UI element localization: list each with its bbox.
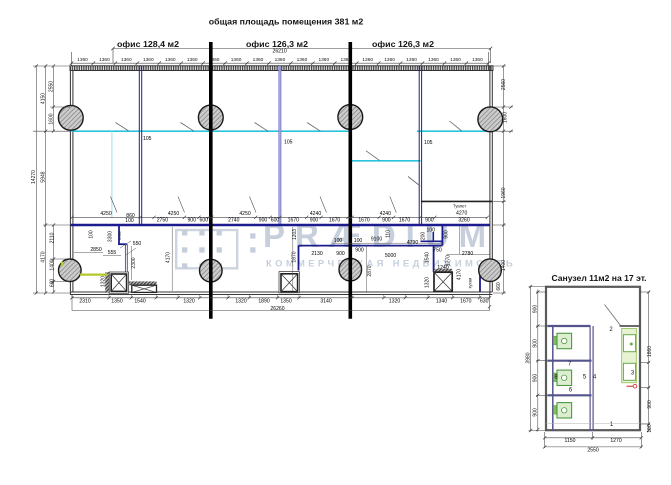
svg-text:2780: 2780 <box>462 251 473 257</box>
svg-text:1320: 1320 <box>100 276 106 287</box>
svg-text:600: 600 <box>271 218 280 224</box>
svg-text:1890: 1890 <box>258 298 269 304</box>
svg-text:900: 900 <box>187 218 196 224</box>
svg-text:1670: 1670 <box>399 218 410 224</box>
svg-text:630: 630 <box>480 298 489 304</box>
svg-text:1600: 1600 <box>48 113 54 124</box>
svg-text:900: 900 <box>336 251 345 257</box>
svg-text:4240: 4240 <box>380 211 391 217</box>
svg-text:кухня: кухня <box>468 278 473 289</box>
svg-text:1360: 1360 <box>253 57 264 63</box>
svg-text:2740: 2740 <box>228 218 239 224</box>
svg-text:офис 128,4 м2: офис 128,4 м2 <box>117 39 179 49</box>
svg-text:110: 110 <box>386 230 392 238</box>
svg-text:105: 105 <box>284 140 293 146</box>
svg-text:1340: 1340 <box>436 298 447 304</box>
svg-text:900: 900 <box>425 218 434 224</box>
svg-text:1350: 1350 <box>280 298 291 304</box>
svg-text:1400: 1400 <box>50 259 56 270</box>
svg-text:1360: 1360 <box>231 57 242 63</box>
svg-text:1360: 1360 <box>384 57 395 63</box>
svg-text:2550: 2550 <box>48 81 54 92</box>
svg-text:5948: 5948 <box>41 171 47 182</box>
svg-text:100: 100 <box>354 238 363 244</box>
svg-text:1670: 1670 <box>329 218 340 224</box>
svg-text:660: 660 <box>496 282 502 291</box>
svg-text:офис 126,3 м2: офис 126,3 м2 <box>246 39 308 49</box>
svg-text:100: 100 <box>334 238 343 244</box>
svg-text:1320: 1320 <box>425 277 431 288</box>
svg-text:4270: 4270 <box>456 211 467 217</box>
svg-text:900: 900 <box>444 230 450 239</box>
svg-text:1360: 1360 <box>275 57 286 63</box>
svg-text:550: 550 <box>133 241 142 247</box>
svg-text:1360: 1360 <box>472 57 483 63</box>
svg-text:750: 750 <box>433 247 442 253</box>
svg-text:4250: 4250 <box>100 211 111 217</box>
svg-text:1320: 1320 <box>389 298 400 304</box>
svg-text:1670: 1670 <box>460 298 471 304</box>
svg-text:1350: 1350 <box>111 298 122 304</box>
svg-text:1360: 1360 <box>143 57 154 63</box>
svg-text:Туалет: Туалет <box>453 204 466 209</box>
svg-text:1360: 1360 <box>362 57 373 63</box>
svg-text:1320: 1320 <box>183 298 194 304</box>
svg-text:2750: 2750 <box>157 218 168 224</box>
svg-text:1360: 1360 <box>99 57 110 63</box>
svg-text:1360: 1360 <box>428 57 439 63</box>
svg-text:4170: 4170 <box>41 251 47 262</box>
svg-text:общая площадь помещения 381 м2: общая площадь помещения 381 м2 <box>209 17 364 27</box>
svg-text:1360: 1360 <box>165 57 176 63</box>
svg-text:105: 105 <box>424 140 433 146</box>
svg-text:1600: 1600 <box>502 112 508 123</box>
svg-text:1320: 1320 <box>235 298 246 304</box>
svg-text:4170: 4170 <box>456 269 462 280</box>
svg-text:4240: 4240 <box>310 211 321 217</box>
svg-text:100: 100 <box>89 230 95 239</box>
svg-text:1400: 1400 <box>501 260 507 271</box>
svg-text:1270: 1270 <box>610 438 621 444</box>
svg-text:100: 100 <box>125 218 134 224</box>
svg-text:1360: 1360 <box>450 57 461 63</box>
svg-text:1670: 1670 <box>358 218 369 224</box>
svg-text:900: 900 <box>533 408 539 417</box>
svg-text:26210: 26210 <box>273 49 287 55</box>
svg-text:1670: 1670 <box>288 218 299 224</box>
svg-text:600: 600 <box>200 218 209 224</box>
svg-text:5000: 5000 <box>385 253 396 259</box>
svg-text:4170: 4170 <box>166 252 172 263</box>
svg-text:660: 660 <box>50 279 56 288</box>
svg-text:1240: 1240 <box>437 265 448 271</box>
svg-text:1540: 1540 <box>134 298 145 304</box>
svg-text:офис 126,3 м2: офис 126,3 м2 <box>372 39 434 49</box>
svg-text:Санузел 11м2 на 17 эт.: Санузел 11м2 на 17 эт. <box>551 273 646 283</box>
svg-text:2310: 2310 <box>79 298 90 304</box>
svg-text:900: 900 <box>259 218 268 224</box>
svg-text:2550: 2550 <box>587 448 598 454</box>
svg-text:3980: 3980 <box>525 352 531 363</box>
svg-text:1150: 1150 <box>565 438 576 444</box>
svg-text:3140: 3140 <box>320 298 331 304</box>
svg-text:26260: 26260 <box>270 306 284 312</box>
svg-text:900: 900 <box>355 247 364 253</box>
svg-text:1960: 1960 <box>501 187 507 198</box>
svg-text:1860: 1860 <box>647 346 653 357</box>
svg-text:2870: 2870 <box>367 265 373 276</box>
svg-text:1360: 1360 <box>121 57 132 63</box>
svg-text:900: 900 <box>647 400 653 409</box>
svg-text:2560: 2560 <box>501 79 507 90</box>
svg-text:2130: 2130 <box>311 251 322 257</box>
svg-text:4150: 4150 <box>41 93 47 104</box>
svg-text:2110: 2110 <box>50 232 56 243</box>
svg-text:900: 900 <box>533 339 539 348</box>
svg-text:900: 900 <box>382 218 391 224</box>
svg-text:190: 190 <box>647 424 653 433</box>
svg-text:1360: 1360 <box>297 57 308 63</box>
svg-text:105: 105 <box>143 136 152 142</box>
svg-text:9100: 9100 <box>371 237 382 243</box>
svg-text:1540: 1540 <box>425 252 431 263</box>
svg-text:1360: 1360 <box>77 57 88 63</box>
svg-text:1360: 1360 <box>187 57 198 63</box>
svg-text:900: 900 <box>533 374 539 383</box>
svg-text:1360: 1360 <box>406 57 417 63</box>
svg-text:100: 100 <box>427 227 436 233</box>
svg-text:3300: 3300 <box>108 231 114 242</box>
svg-text:4250: 4250 <box>239 211 250 217</box>
svg-text:900: 900 <box>310 218 319 224</box>
svg-text:4250: 4250 <box>168 211 179 217</box>
svg-text:900: 900 <box>533 305 539 314</box>
svg-text:14270: 14270 <box>31 170 37 184</box>
svg-text:555: 555 <box>108 250 117 256</box>
svg-text:3260: 3260 <box>458 218 469 224</box>
svg-text:2300: 2300 <box>131 257 137 268</box>
svg-text:2850: 2850 <box>90 247 101 253</box>
svg-text:1870: 1870 <box>292 251 298 262</box>
svg-text:в.950: в.950 <box>118 231 122 240</box>
svg-text:1360: 1360 <box>318 57 329 63</box>
